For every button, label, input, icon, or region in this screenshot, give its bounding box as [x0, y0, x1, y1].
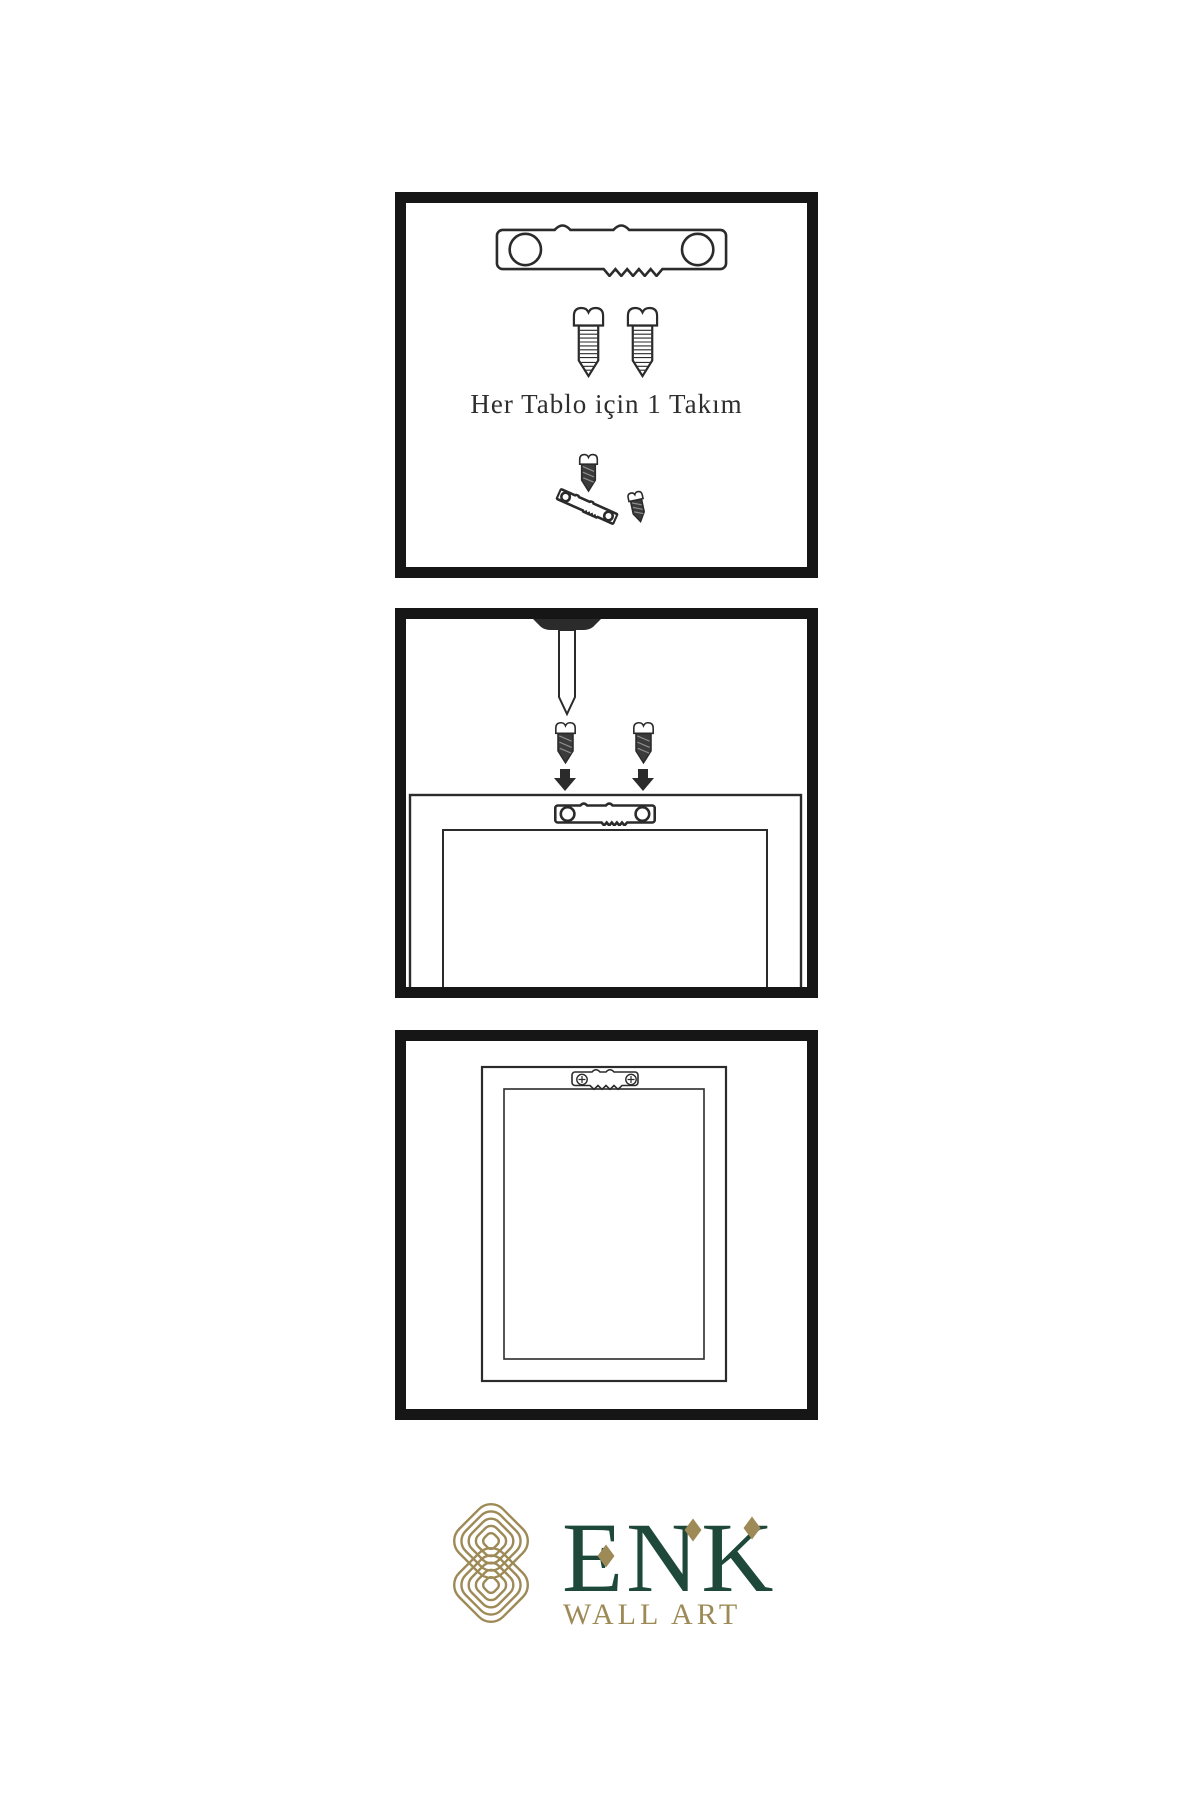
hung-frame-illustration: [406, 1041, 807, 1409]
sawtooth-hanger-icon: [556, 488, 619, 526]
nail-icon: [533, 619, 601, 714]
brand-knot-icon: [434, 1494, 548, 1632]
screw-icon: [574, 308, 603, 376]
sawtooth-hanger-icon: [497, 226, 726, 276]
panel-hung-frame: [395, 1030, 818, 1420]
mounting-illustration: [406, 619, 807, 987]
hardware-kit-illustration: [406, 203, 807, 567]
hanger-mounting-mini-illustration: [556, 455, 648, 526]
screw-icon: [628, 308, 657, 376]
panel-hardware-kit: Her Tablo için 1 Takım: [395, 192, 818, 578]
screw-dark-icon: [556, 723, 575, 763]
brand-name: ENK: [562, 1508, 777, 1608]
page: Her Tablo için 1 Takım: [0, 0, 1200, 1800]
screw-dark-icon: [634, 723, 653, 763]
screw-dark-icon: [580, 455, 598, 491]
arrow-down-icon: [632, 769, 654, 791]
screw-dark-icon: [627, 491, 647, 523]
brand-tagline: WALL ART: [563, 1600, 741, 1630]
kit-caption: Her Tablo için 1 Takım: [406, 389, 807, 420]
sawtooth-hanger-icon: [555, 804, 654, 826]
panel-mounting-step: [395, 608, 818, 998]
arrow-down-icon: [554, 769, 576, 791]
picture-frame-back-icon: [482, 1067, 726, 1381]
